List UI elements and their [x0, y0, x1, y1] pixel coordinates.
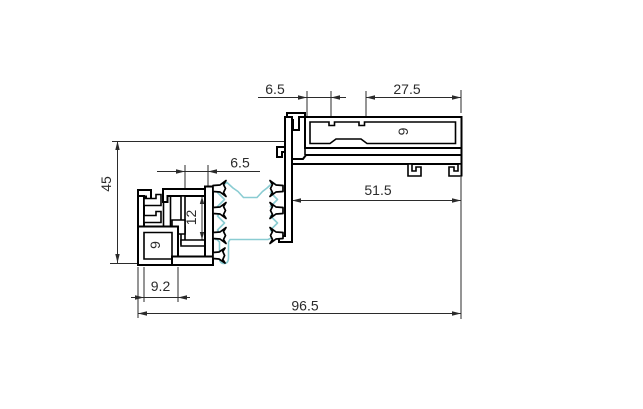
frame-right-hook [449, 164, 462, 176]
dim-label-glazing-channel-height: 9 [395, 127, 411, 135]
dim-label-overall-height: 45 [98, 176, 114, 192]
frame-profile-outline [277, 113, 462, 242]
arrow [366, 95, 375, 99]
frame-mid-hook [408, 164, 421, 176]
dim-label-mid-offset: 6.5 [230, 155, 250, 171]
arrow [176, 169, 185, 173]
frame-clip-fin [270, 181, 283, 197]
arrow [208, 169, 217, 173]
profile-drawing-svg: 6.5 27.5 9 51.5 6.5 12 9 45 9.2 96.5 [0, 0, 643, 409]
dim-label-groove-height: 12 [183, 210, 199, 226]
arrow [298, 95, 307, 99]
arrow [331, 95, 340, 99]
frame-bar [292, 155, 462, 164]
arrow [200, 232, 204, 240]
dim-label-top-offset: 6.5 [265, 81, 285, 97]
dim-label-foot-width: 9.2 [151, 278, 171, 294]
arrow [200, 197, 204, 205]
adapter-finger-lower [144, 212, 161, 223]
dim-label-lower-box-height: 9 [147, 241, 163, 249]
cad-drawing-canvas: 6.5 27.5 9 51.5 6.5 12 9 45 9.2 96.5 [0, 0, 643, 409]
arrow [292, 198, 301, 202]
arrow [452, 198, 461, 202]
arrow [452, 95, 461, 99]
adapter-clip-wall [205, 187, 213, 263]
arrow [178, 295, 187, 299]
arrow [452, 311, 461, 315]
frame-top-box-cavity [310, 122, 456, 144]
arrow [138, 311, 147, 315]
dim-label-frame-width: 51.5 [364, 182, 391, 198]
frame-left-tab [277, 147, 285, 157]
frame-left-leg [279, 117, 292, 242]
adapter-foot [172, 257, 213, 266]
arrow [135, 295, 144, 299]
arrow [115, 254, 119, 263]
frame-clip-fin [270, 203, 283, 219]
dim-label-top-width: 27.5 [393, 81, 420, 97]
arrow [115, 141, 119, 150]
dim-label-overall-width: 96.5 [291, 298, 318, 314]
